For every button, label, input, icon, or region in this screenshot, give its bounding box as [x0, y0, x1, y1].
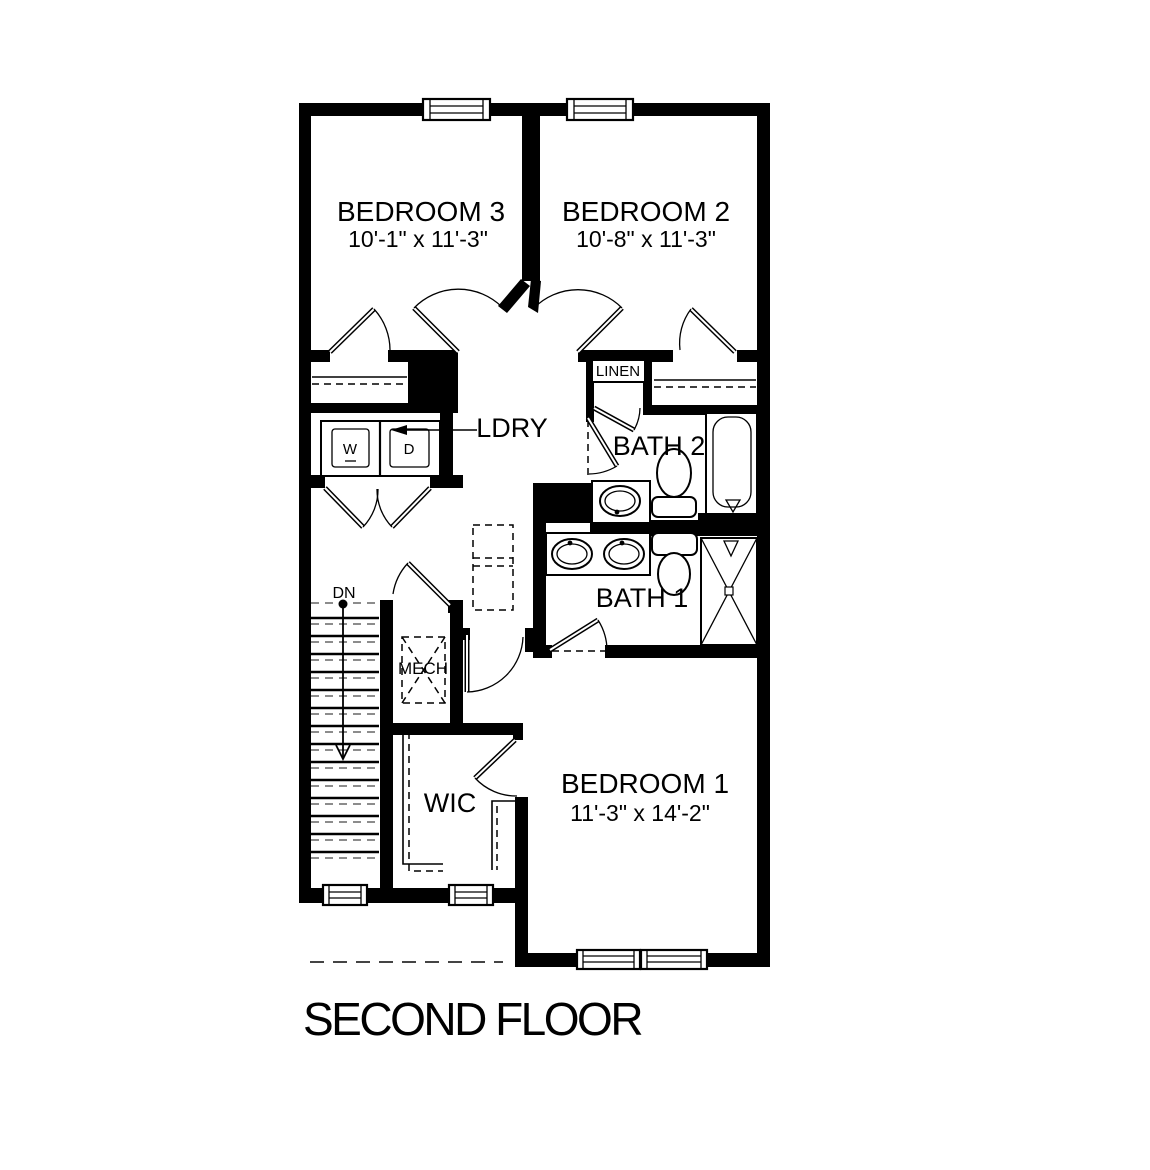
door-laundry-right: [377, 488, 430, 527]
attic-access-panel: [473, 525, 513, 610]
linen-closet: LINEN: [592, 360, 645, 382]
plan-title: SECOND FLOOR: [303, 993, 642, 1045]
shower: [701, 538, 757, 645]
wall-bedroom-divider: [522, 103, 540, 281]
laundry-appliances: W D: [321, 421, 440, 476]
door-bed3-entry: [414, 289, 502, 352]
bath2-fixtures: [592, 413, 757, 523]
door-wic: [475, 740, 517, 796]
window-bedroom2: [567, 99, 633, 120]
wall-bed3-closet: [299, 403, 458, 413]
wall-wic-top: [380, 723, 517, 735]
linen-label: LINEN: [596, 363, 640, 380]
bedroom1-dims: 11'-3" x 14'-2": [570, 800, 710, 826]
door-mech: [393, 563, 450, 605]
wall-vestibule-jamb: [525, 628, 543, 652]
wall-stairs-divider: [380, 600, 393, 903]
wall-bath-block: [533, 483, 595, 523]
washer-label: W: [343, 441, 358, 458]
window-wic: [449, 885, 493, 905]
bath1-label: BATH 1: [596, 583, 689, 613]
door-bed3-closet: [330, 309, 390, 352]
window-bedroom1-double: [577, 950, 707, 969]
door-linen: [594, 408, 640, 430]
wall-wic-door-jamb: [513, 723, 523, 740]
door-laundry-left: [325, 488, 378, 527]
wall-divider-stub-left: [498, 279, 530, 313]
wic-label: WIC: [424, 788, 476, 818]
bedroom3-label: BEDROOM 3: [337, 196, 505, 227]
wall-segment: [299, 350, 330, 362]
door-bedroom1-entry: [467, 635, 523, 692]
stairs-down-label: DN: [332, 585, 355, 602]
bath1-toilet-tank: [652, 533, 697, 555]
bedroom2-label: BEDROOM 2: [562, 196, 730, 227]
bath2-toilet-tank: [652, 497, 696, 517]
door-bed2-entry: [534, 290, 622, 352]
wall-segment: [388, 350, 410, 362]
bedroom2-dims: 10'-8" x 11'-3": [576, 226, 716, 252]
dryer-label: D: [404, 441, 415, 458]
wall-bedroom1-left: [515, 797, 528, 967]
wall-left: [299, 103, 311, 903]
laundry-label: LDRY: [476, 413, 548, 443]
wall-segment: [737, 350, 770, 362]
window-stairs-landing: [323, 885, 367, 905]
floor-plan-page: DN: [0, 0, 1150, 1170]
bath2-label: BATH 2: [613, 431, 706, 461]
room-bedroom1: BEDROOM 1 11'-3" x 14'-2": [561, 768, 729, 826]
room-bedroom3: BEDROOM 3 10'-1" x 11'-3": [337, 196, 505, 252]
bedroom3-dims: 10'-1" x 11'-3": [348, 226, 488, 252]
wall-bath1-bottom-right: [605, 645, 770, 658]
door-bath1: [550, 620, 607, 651]
door-bed2-closet: [680, 309, 735, 352]
room-bedroom2: BEDROOM 2 10'-8" x 11'-3": [562, 196, 730, 252]
floor-plan-drawing: DN: [0, 0, 1150, 1170]
window-bedroom3: [423, 99, 490, 120]
bedroom1-label: BEDROOM 1: [561, 768, 729, 799]
stairs: DN: [311, 585, 379, 858]
mech-label: MECH: [398, 659, 448, 678]
stairs-down-arrow: [336, 600, 350, 760]
wall-mech-right: [450, 600, 463, 735]
wic-shelf-right: [492, 801, 515, 870]
